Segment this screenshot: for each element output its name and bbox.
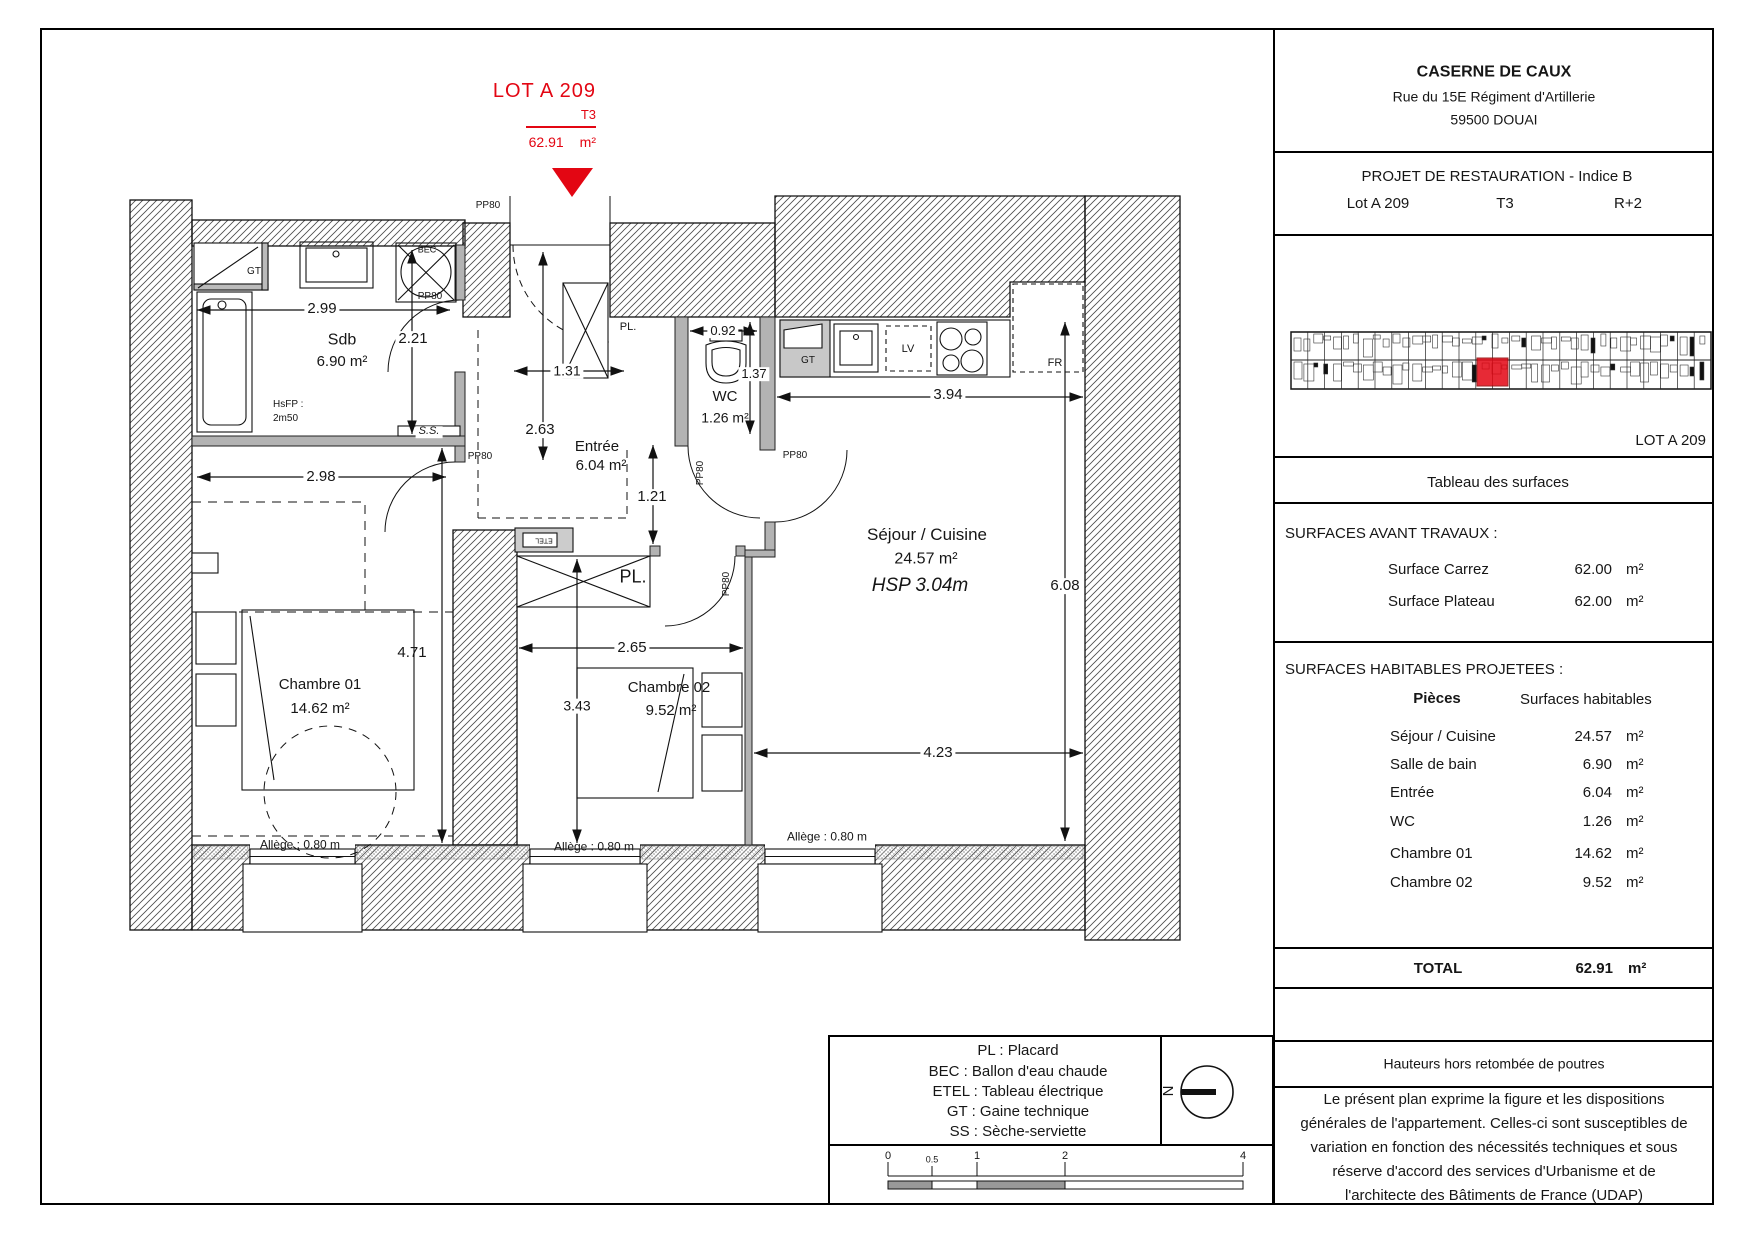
surface-row-value: 62.00 [1574, 562, 1612, 578]
door-tag-pp80: PP80 [783, 451, 807, 462]
scale-tick-label: 2 [1062, 1151, 1068, 1163]
room-area-wc: 1.26 m² [701, 411, 748, 426]
dim-label: 6.08 [1047, 578, 1082, 594]
north-label: N [1161, 1086, 1177, 1097]
titleblock-rule [1274, 234, 1714, 236]
surface-row-unit: m² [1626, 594, 1644, 610]
surface-row-value: 6.04 [1583, 785, 1612, 801]
surface-row-label: Séjour / Cuisine [1390, 729, 1496, 745]
lot-marker-type: T3 [420, 107, 596, 122]
surface-row-unit: m² [1626, 846, 1644, 862]
door-tag-pp80: PP80 [696, 461, 707, 485]
room-area-entree: 6.04 m² [576, 458, 627, 474]
drawing-sheet: LOT A 209 T3 62.91m² Sdb 6.90 m² Entrée … [0, 0, 1754, 1240]
surface-row-value: 9.52 [1583, 875, 1612, 891]
etel-tag: ETEL [535, 536, 553, 543]
legend-line: PL : Placard [977, 1043, 1058, 1059]
door-tag-pp80: PP80 [722, 572, 733, 596]
scale-tick-label: 4 [1240, 1151, 1246, 1163]
legend-rule [828, 1144, 1274, 1146]
titleblock-rule [1274, 502, 1714, 504]
gt-tag: GT [801, 356, 815, 367]
surface-row-value: 6.90 [1583, 757, 1612, 773]
dim-label: 0.92 [707, 324, 738, 338]
surface-row-value: 14.62 [1574, 846, 1612, 862]
room-area-ch2: 9.52 m² [646, 703, 697, 719]
scale-tick-label: 0 [885, 1151, 891, 1163]
titleblock-rule [1274, 151, 1714, 153]
surface-row-value: 24.57 [1574, 729, 1612, 745]
room-area-sejour: 24.57 m² [894, 552, 957, 569]
titleblock-left-border [1273, 28, 1275, 1205]
surface-table-title: Tableau des surfaces [1427, 475, 1569, 491]
allege-label: Allège : 0.80 m [554, 841, 634, 854]
disclaimer-line: générales de l'appartement. Celles-ci so… [1300, 1116, 1687, 1132]
room-label-wc: WC [713, 389, 738, 405]
lot-marker-title: LOT A 209 [420, 80, 596, 103]
lot-marker: LOT A 209 T3 62.91m² [420, 80, 596, 150]
lv-tag: LV [902, 344, 915, 356]
surface-row-unit: m² [1626, 729, 1644, 745]
titleblock-rule [1274, 456, 1714, 458]
door-tag-pp80: PP80 [418, 292, 442, 303]
titleblock-project: PROJET DE RESTAURATION - Indice B [1362, 169, 1633, 185]
dim-label: 3.43 [560, 699, 593, 714]
titleblock-address1: Rue du 15E Régiment d'Artillerie [1393, 90, 1596, 105]
dim-label: 1.37 [738, 367, 769, 381]
surface-row-unit: m² [1626, 562, 1644, 578]
surface-row-label: Chambre 01 [1390, 846, 1473, 862]
surface-row-label: Entrée [1390, 785, 1434, 801]
surface-row-unit: m² [1626, 875, 1644, 891]
column-header-rooms: Pièces [1413, 691, 1461, 707]
dim-label: 4.23 [920, 745, 955, 761]
column-header-surfaces: Surfaces habitables [1520, 692, 1652, 708]
room-area-ch1: 14.62 m² [290, 701, 349, 717]
room-area-sdb: 6.90 m² [317, 354, 368, 370]
legend-line: SS : Sèche-serviette [950, 1124, 1087, 1140]
room-label-ch2: Chambre 02 [628, 680, 711, 696]
total-label: TOTAL [1414, 961, 1463, 977]
gt-tag: GT [247, 267, 261, 278]
dim-label: 2.21 [395, 331, 430, 347]
titleblock-rule [1274, 1086, 1714, 1088]
dim-label: 1.31 [550, 364, 583, 379]
surface-row-unit: m² [1626, 814, 1644, 830]
lot-marker-area: 62.91m² [420, 134, 596, 150]
legend-line: GT : Gaine technique [947, 1104, 1089, 1120]
titleblock-rule [1274, 1040, 1714, 1042]
surfaces-projected-title: SURFACES HABITABLES PROJETEES : [1285, 662, 1563, 678]
titleblock-address2: 59500 DOUAI [1450, 113, 1537, 128]
titleblock-rule [1274, 987, 1714, 989]
room-label-entree: Entrée [575, 439, 619, 455]
surface-row-label: Surface Carrez [1388, 562, 1489, 578]
surface-row-unit: m² [1626, 757, 1644, 773]
total-value: 62.91 [1575, 961, 1613, 977]
room-label-ch1: Chambre 01 [279, 677, 362, 693]
titleblock-lot: Lot A 209 [1347, 196, 1410, 212]
disclaimer-line: Le présent plan exprime la figure et les… [1323, 1092, 1664, 1108]
scale-tick-label: 1 [974, 1151, 980, 1163]
hsfp-tag: HsFP : [273, 400, 303, 411]
room-label-sdb: Sdb [328, 333, 356, 350]
closet-tag-pl: PL. [619, 568, 646, 587]
keyplan-lot-label: LOT A 209 [1635, 433, 1706, 449]
dim-label: 2.99 [304, 301, 339, 317]
bec-tag: BEC [418, 245, 437, 254]
titleblock-floor: R+2 [1614, 196, 1642, 212]
dim-label: 2.98 [303, 469, 338, 485]
surfaces-before-title: SURFACES AVANT TRAVAUX : [1285, 526, 1498, 542]
surface-row-label: Surface Plateau [1388, 594, 1495, 610]
allege-label: Allège : 0.80 m [260, 839, 340, 852]
disclaimer-line: variation en fonction des nécessités tec… [1311, 1140, 1678, 1156]
total-unit: m² [1628, 961, 1646, 977]
dim-label: 2.63 [522, 422, 557, 438]
sheet-frame [40, 28, 1714, 1205]
lot-marker-rule [526, 126, 596, 128]
ss-tag: S.S. [416, 426, 443, 438]
allege-label: Allège : 0.80 m [787, 831, 867, 844]
closet-tag-pl: PL. [620, 322, 637, 334]
titleblock-name: CASERNE DE CAUX [1417, 65, 1572, 82]
disclaimer-line: l'architecte des Bâtiments de France (UD… [1345, 1188, 1643, 1204]
lot-marker-area-value: 62.91 [529, 134, 564, 150]
dim-label: 3.94 [930, 387, 965, 403]
hsfp-tag: 2m50 [273, 414, 298, 425]
disclaimer-line: réserve d'accord des services d'Urbanism… [1332, 1164, 1655, 1180]
surface-row-value: 1.26 [1583, 814, 1612, 830]
titleblock-rule [1274, 947, 1714, 949]
legend-line: ETEL : Tableau électrique [933, 1084, 1104, 1100]
surface-row-label: Chambre 02 [1390, 875, 1473, 891]
room-label-sejour: Séjour / Cuisine [867, 526, 987, 544]
room-hsp-sejour: HSP 3.04m [872, 576, 968, 596]
titleblock-rule [1274, 641, 1714, 643]
door-tag-pp80: PP80 [476, 201, 500, 212]
door-tag-pp80: PP80 [468, 452, 492, 463]
dim-label: 1.21 [634, 489, 669, 505]
titleblock-type: T3 [1496, 196, 1514, 212]
scale-tick-label: 0.5 [926, 1155, 939, 1164]
heights-note: Hauteurs hors retombée de poutres [1383, 1057, 1604, 1072]
surface-row-label: WC [1390, 814, 1415, 830]
dim-label: 2.65 [614, 640, 649, 656]
surface-row-unit: m² [1626, 785, 1644, 801]
lot-marker-area-unit: m² [580, 134, 596, 150]
surface-row-value: 62.00 [1574, 594, 1612, 610]
legend-line: BEC : Ballon d'eau chaude [929, 1064, 1108, 1080]
fr-tag: FR [1048, 358, 1063, 370]
surface-row-label: Salle de bain [1390, 757, 1477, 773]
dim-label: 4.71 [397, 645, 426, 661]
